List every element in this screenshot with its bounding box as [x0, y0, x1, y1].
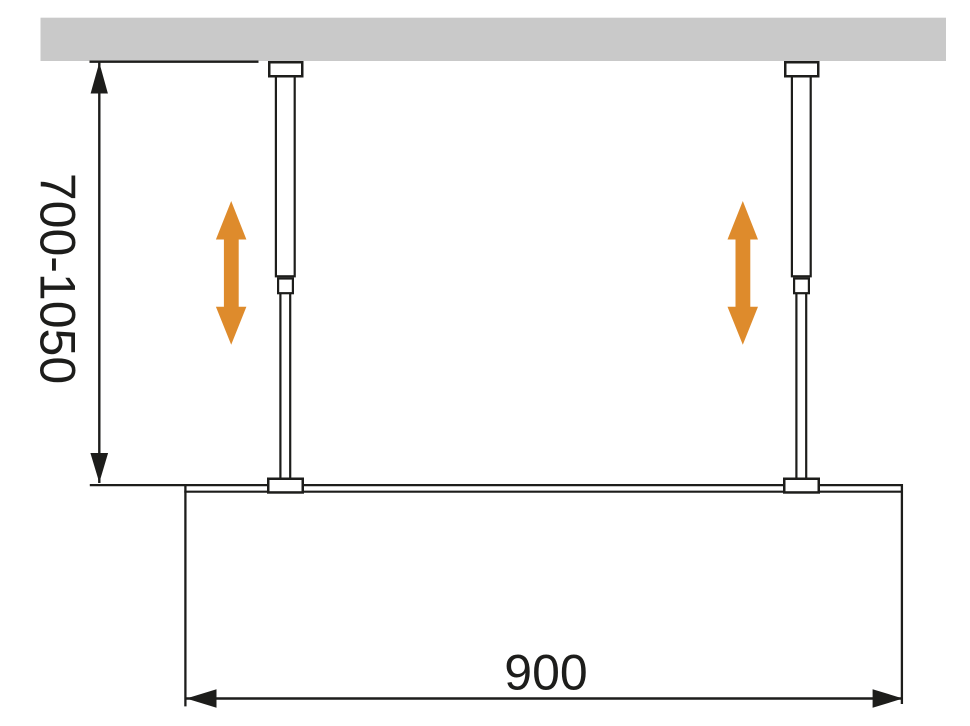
svg-text:900: 900 — [504, 645, 587, 701]
svg-text:700-1050: 700-1050 — [30, 173, 86, 384]
